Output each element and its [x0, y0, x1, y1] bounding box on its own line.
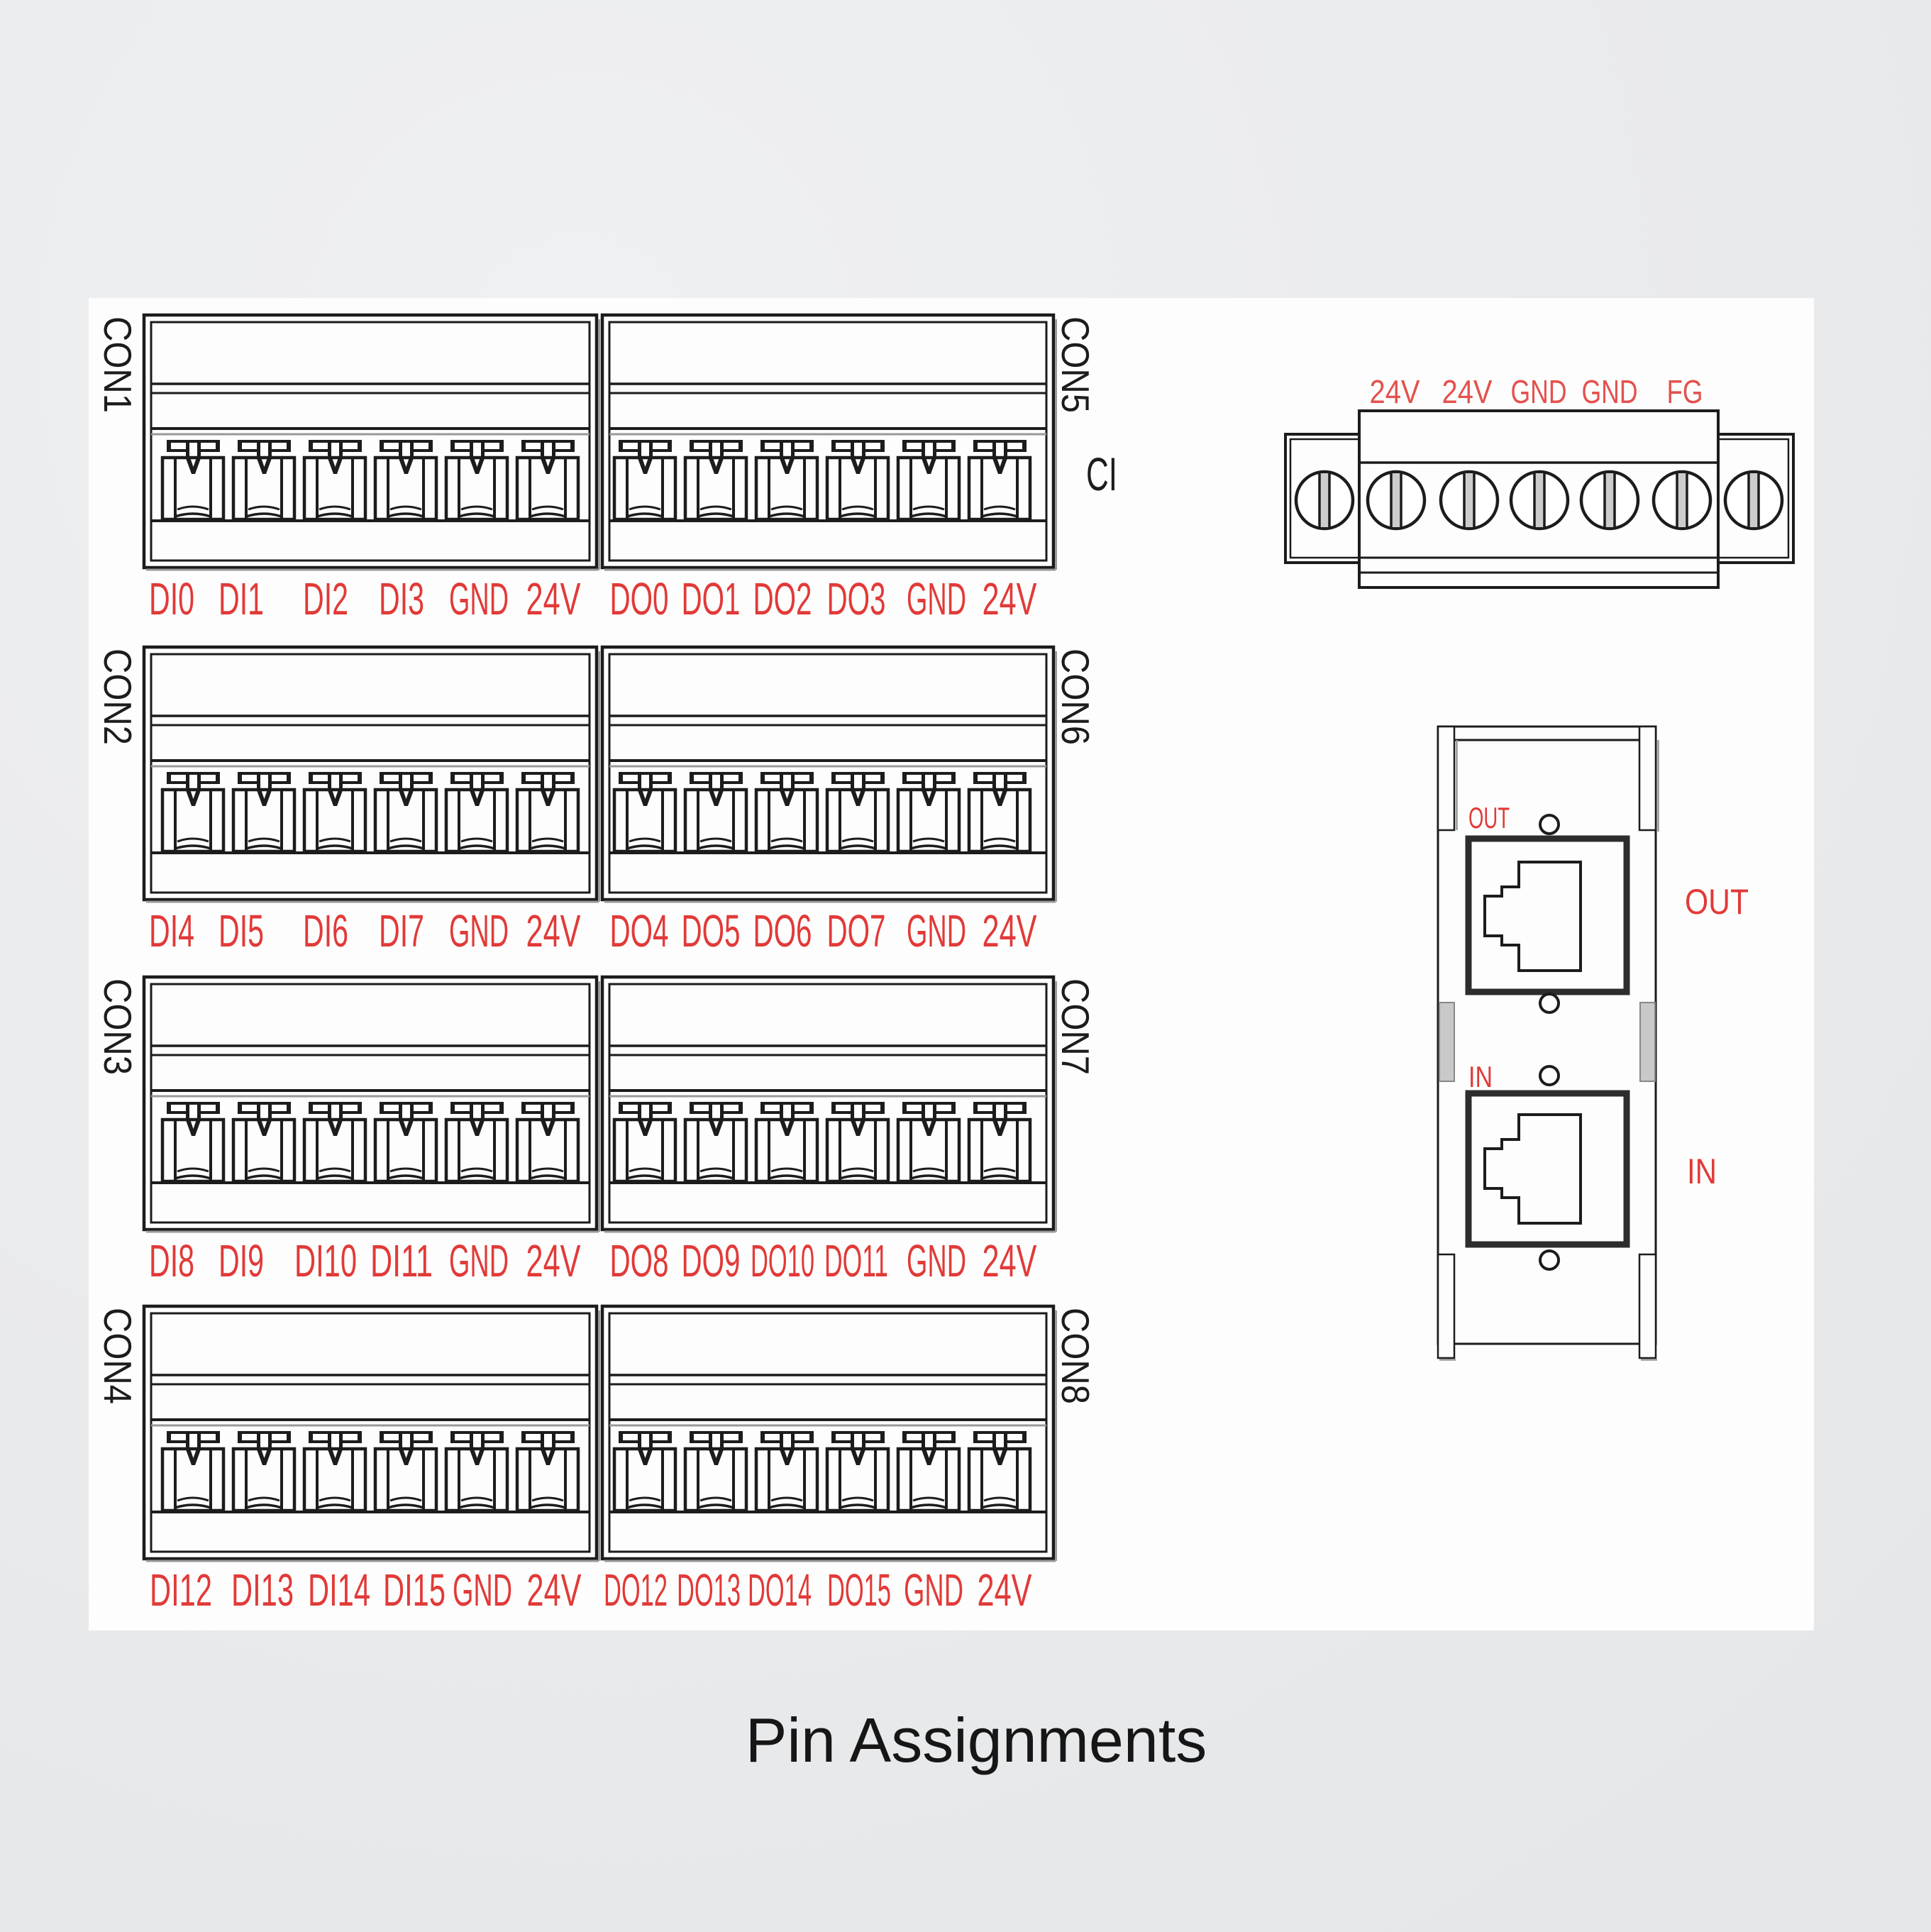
svg-text:GND: GND — [449, 905, 509, 956]
svg-text:FG: FG — [1667, 373, 1703, 410]
svg-text:DO10: DO10 — [751, 1235, 814, 1286]
svg-text:CON2: CON2 — [96, 648, 140, 745]
svg-text:CON6: CON6 — [1053, 648, 1097, 745]
svg-text:OUT: OUT — [1685, 882, 1749, 922]
svg-text:GND: GND — [1511, 373, 1567, 410]
svg-text:DI1: DI1 — [218, 573, 264, 624]
svg-text:CON8: CON8 — [1053, 1308, 1097, 1404]
svg-text:24V: 24V — [983, 573, 1037, 624]
svg-text:DO2: DO2 — [753, 573, 812, 624]
svg-text:DI11: DI11 — [370, 1235, 433, 1286]
svg-text:24V: 24V — [983, 1235, 1037, 1286]
svg-text:24V: 24V — [1442, 373, 1493, 410]
svg-text:CON1: CON1 — [96, 316, 140, 413]
svg-text:CON3: CON3 — [96, 978, 140, 1075]
svg-text:DI2: DI2 — [303, 573, 348, 624]
svg-text:CON7: CON7 — [1053, 978, 1097, 1075]
svg-text:DO11: DO11 — [824, 1235, 888, 1286]
svg-text:DI13: DI13 — [231, 1564, 294, 1616]
svg-text:DI9: DI9 — [218, 1235, 264, 1286]
svg-text:DO5: DO5 — [682, 905, 741, 956]
svg-text:DI3: DI3 — [379, 573, 424, 624]
svg-text:DI10: DI10 — [294, 1235, 357, 1286]
svg-text:GND: GND — [453, 1564, 512, 1616]
svg-text:24V: 24V — [526, 905, 581, 956]
svg-text:GND: GND — [907, 573, 966, 624]
svg-text:DO0: DO0 — [610, 573, 669, 624]
svg-text:24V: 24V — [527, 1564, 582, 1616]
svg-text:DO8: DO8 — [610, 1235, 669, 1286]
svg-text:24V: 24V — [526, 573, 581, 624]
svg-text:CI: CI — [1086, 448, 1117, 500]
svg-text:DO13: DO13 — [677, 1564, 741, 1616]
svg-text:CON4: CON4 — [96, 1308, 140, 1404]
svg-text:GND: GND — [904, 1564, 963, 1616]
svg-text:DO12: DO12 — [604, 1564, 668, 1616]
svg-text:DI7: DI7 — [379, 905, 424, 956]
svg-text:24V: 24V — [978, 1564, 1032, 1616]
svg-text:DO15: DO15 — [827, 1564, 891, 1616]
svg-text:DO14: DO14 — [748, 1564, 812, 1616]
svg-text:DO1: DO1 — [682, 573, 741, 624]
svg-text:DO9: DO9 — [682, 1235, 741, 1286]
svg-text:GND: GND — [449, 1235, 509, 1286]
svg-text:IN: IN — [1687, 1152, 1717, 1191]
svg-text:Pin Assignments: Pin Assignments — [746, 1705, 1207, 1775]
svg-text:IN: IN — [1468, 1060, 1493, 1093]
svg-text:DI5: DI5 — [218, 905, 264, 956]
svg-text:GND: GND — [1582, 373, 1638, 410]
svg-text:OUT: OUT — [1468, 801, 1510, 834]
svg-text:DI6: DI6 — [303, 905, 348, 956]
svg-text:GND: GND — [449, 573, 509, 624]
svg-text:CON5: CON5 — [1053, 316, 1097, 413]
svg-text:24V: 24V — [983, 905, 1037, 956]
svg-text:DI15: DI15 — [383, 1564, 446, 1616]
svg-text:DI8: DI8 — [149, 1235, 194, 1286]
svg-text:24V: 24V — [526, 1235, 581, 1286]
svg-text:DI14: DI14 — [308, 1564, 370, 1616]
svg-text:DO3: DO3 — [827, 573, 886, 624]
svg-text:24V: 24V — [1370, 373, 1420, 410]
svg-text:DO4: DO4 — [610, 905, 669, 956]
svg-text:GND: GND — [907, 1235, 966, 1286]
svg-text:DI4: DI4 — [149, 905, 194, 956]
svg-text:DO7: DO7 — [827, 905, 886, 956]
svg-text:DO6: DO6 — [753, 905, 812, 956]
svg-text:DI0: DI0 — [149, 573, 194, 624]
svg-text:DI12: DI12 — [150, 1564, 212, 1616]
svg-text:GND: GND — [907, 905, 966, 956]
